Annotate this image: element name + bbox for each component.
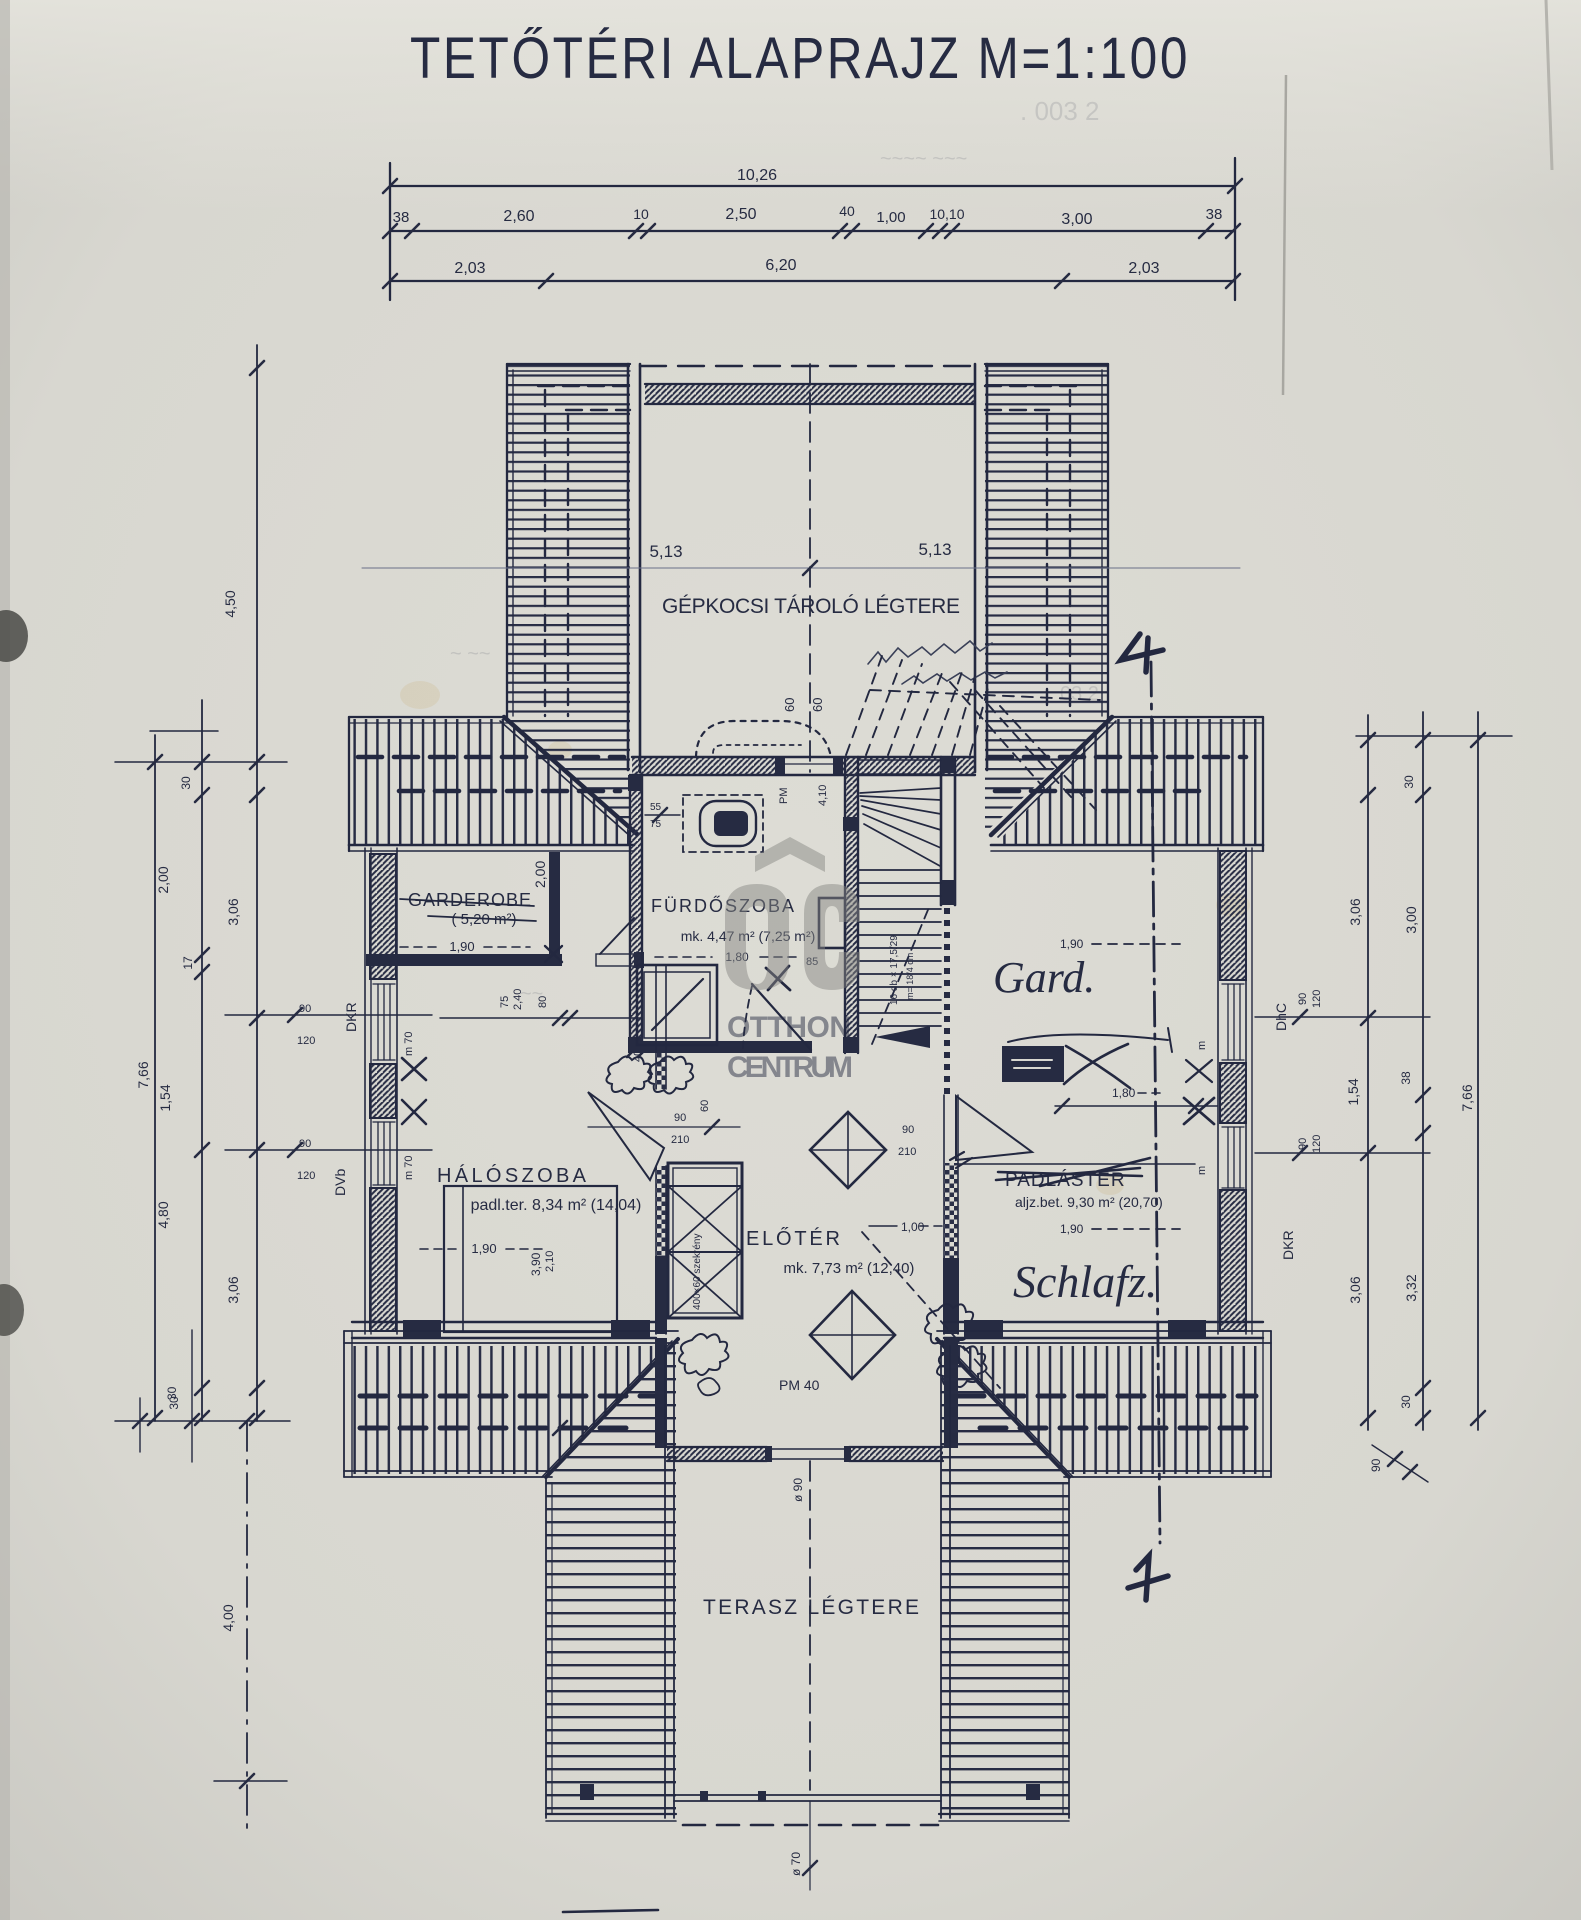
svg-text:90: 90 — [674, 1112, 686, 1124]
svg-text:7,66: 7,66 — [1459, 1084, 1475, 1111]
svg-text:30: 30 — [1402, 775, 1416, 789]
svg-text:90: 90 — [1297, 993, 1309, 1005]
svg-text:30: 30 — [179, 776, 193, 790]
svg-text:6,20: 6,20 — [765, 257, 796, 274]
svg-text:120: 120 — [1311, 990, 1323, 1008]
svg-text:1,90: 1,90 — [449, 939, 474, 954]
svg-text:padl.ter. 8,34 m² (14,04): padl.ter. 8,34 m² (14,04) — [471, 1197, 642, 1214]
svg-text:210: 210 — [671, 1134, 689, 1146]
svg-text:DVb: DVb — [332, 1169, 348, 1196]
svg-text:mk. 7,73 m² (12,40): mk. 7,73 m² (12,40) — [784, 1260, 915, 1277]
svg-text:3,90: 3,90 — [529, 1252, 543, 1276]
svg-text:PM 40: PM 40 — [779, 1377, 820, 1393]
svg-text:DKR: DKR — [1280, 1230, 1296, 1260]
svg-text:OTTHON: OTTHON — [727, 1011, 851, 1044]
svg-text:Gard.: Gard. — [993, 953, 1095, 1002]
svg-text:2,03: 2,03 — [1128, 260, 1159, 277]
svg-text:38: 38 — [1399, 1071, 1413, 1085]
svg-text:210: 210 — [898, 1146, 916, 1158]
svg-text:TERASZ LÉGTERE: TERASZ LÉGTERE — [703, 1596, 921, 1619]
svg-text:2,40: 2,40 — [512, 989, 524, 1010]
svg-text:mk. 4,47 m² (7,25 m²): mk. 4,47 m² (7,25 m²) — [681, 928, 816, 944]
svg-text:90: 90 — [1369, 1458, 1383, 1472]
svg-text:60: 60 — [782, 698, 797, 712]
svg-text:10,10: 10,10 — [929, 206, 964, 222]
svg-text:PM: PM — [778, 788, 790, 805]
svg-text:400×60 szekrény: 400×60 szekrény — [692, 1234, 703, 1310]
svg-text:120: 120 — [297, 1170, 315, 1182]
svg-text:120: 120 — [297, 1035, 315, 1047]
svg-text:1,00: 1,00 — [901, 1220, 925, 1234]
svg-text:1,00: 1,00 — [876, 209, 905, 226]
svg-text:4,80: 4,80 — [155, 1201, 171, 1228]
svg-text:2,00: 2,00 — [532, 861, 548, 888]
svg-text:m 70: m 70 — [403, 1032, 415, 1056]
svg-text:120: 120 — [1311, 1135, 1323, 1153]
svg-text:5,13: 5,13 — [918, 540, 951, 559]
svg-text:1,90: 1,90 — [471, 1241, 496, 1256]
svg-text:3,32: 3,32 — [1403, 1274, 1419, 1301]
svg-text:~~~~ ~~~: ~~~~ ~~~ — [880, 148, 967, 170]
svg-text:75: 75 — [499, 996, 511, 1008]
svg-text:10: 10 — [633, 206, 649, 222]
svg-text:3,00: 3,00 — [1061, 211, 1092, 228]
svg-text:60: 60 — [810, 698, 825, 712]
svg-text:5,13: 5,13 — [649, 542, 682, 561]
svg-text:~ ~~: ~ ~~ — [450, 643, 491, 665]
svg-text:60: 60 — [699, 1100, 711, 1112]
svg-text:m: m — [1196, 1166, 1208, 1175]
svg-text:40: 40 — [839, 203, 855, 219]
svg-text:1,54: 1,54 — [1345, 1078, 1361, 1105]
svg-text:90: 90 — [299, 1003, 311, 1015]
svg-text:38: 38 — [393, 209, 410, 226]
svg-text:1,90: 1,90 — [1060, 1222, 1084, 1236]
svg-text:m 70: m 70 — [403, 1156, 415, 1180]
svg-text:4,10: 4,10 — [817, 785, 829, 806]
svg-text:4,50: 4,50 — [222, 590, 238, 617]
svg-text:3,06: 3,06 — [1347, 898, 1363, 925]
svg-text:ø 90: ø 90 — [791, 1478, 805, 1502]
svg-text:CENTRUM: CENTRUM — [727, 1051, 853, 1084]
svg-text:2,60: 2,60 — [503, 208, 534, 225]
svg-text:1,54: 1,54 — [157, 1084, 173, 1111]
svg-text:3,06: 3,06 — [225, 1276, 241, 1303]
svg-text:2,00: 2,00 — [155, 866, 171, 893]
svg-text:30: 30 — [1399, 1395, 1413, 1409]
svg-text:HÁLÓSZOBA: HÁLÓSZOBA — [437, 1164, 587, 1187]
svg-text:17: 17 — [181, 956, 195, 970]
svg-text:7,66: 7,66 — [135, 1061, 151, 1088]
svg-text:GÉPKOCSI TÁROLÓ LÉGTERE: GÉPKOCSI TÁROLÓ LÉGTERE — [662, 595, 962, 618]
svg-text:3,00: 3,00 — [1403, 906, 1419, 933]
svg-text:10,26: 10,26 — [737, 167, 777, 184]
svg-text:m= 18/4 cm: m= 18/4 cm — [905, 953, 915, 1000]
svg-text:90: 90 — [299, 1138, 311, 1150]
svg-text:2,03: 2,03 — [454, 260, 485, 277]
svg-text:55: 55 — [650, 802, 662, 813]
svg-text:38: 38 — [1206, 206, 1223, 223]
svg-text:ELŐTÉR: ELŐTÉR — [746, 1227, 842, 1250]
svg-text:2,10: 2,10 — [544, 1251, 556, 1272]
svg-text:90: 90 — [1297, 1138, 1309, 1150]
svg-text:30: 30 — [165, 1386, 179, 1400]
svg-text:80: 80 — [537, 996, 549, 1008]
svg-text:1,90: 1,90 — [1060, 937, 1084, 951]
svg-text:Schlafz.: Schlafz. — [1013, 1256, 1157, 1307]
svg-text:2,50: 2,50 — [725, 206, 756, 223]
svg-text:3,06: 3,06 — [225, 898, 241, 925]
svg-text:ø 70: ø 70 — [789, 1852, 803, 1876]
svg-text:m: m — [1196, 1041, 1208, 1050]
svg-text:90: 90 — [902, 1124, 914, 1136]
svg-text:aljz.bet. 9,30 m² (20,70): aljz.bet. 9,30 m² (20,70) — [1015, 1194, 1163, 1210]
svg-text:1,80: 1,80 — [1112, 1086, 1136, 1100]
svg-text:TETŐTÉRI ALAPRAJZ M=1:100: TETŐTÉRI ALAPRAJZ M=1:100 — [410, 26, 1190, 91]
svg-text:DKR: DKR — [343, 1002, 359, 1032]
svg-text:4,00: 4,00 — [220, 1604, 236, 1631]
svg-text:. 003 2: . 003 2 — [1020, 96, 1100, 126]
svg-text:16 db × 17,5/29: 16 db × 17,5/29 — [889, 935, 900, 1005]
svg-text:3,06: 3,06 — [1347, 1276, 1363, 1303]
